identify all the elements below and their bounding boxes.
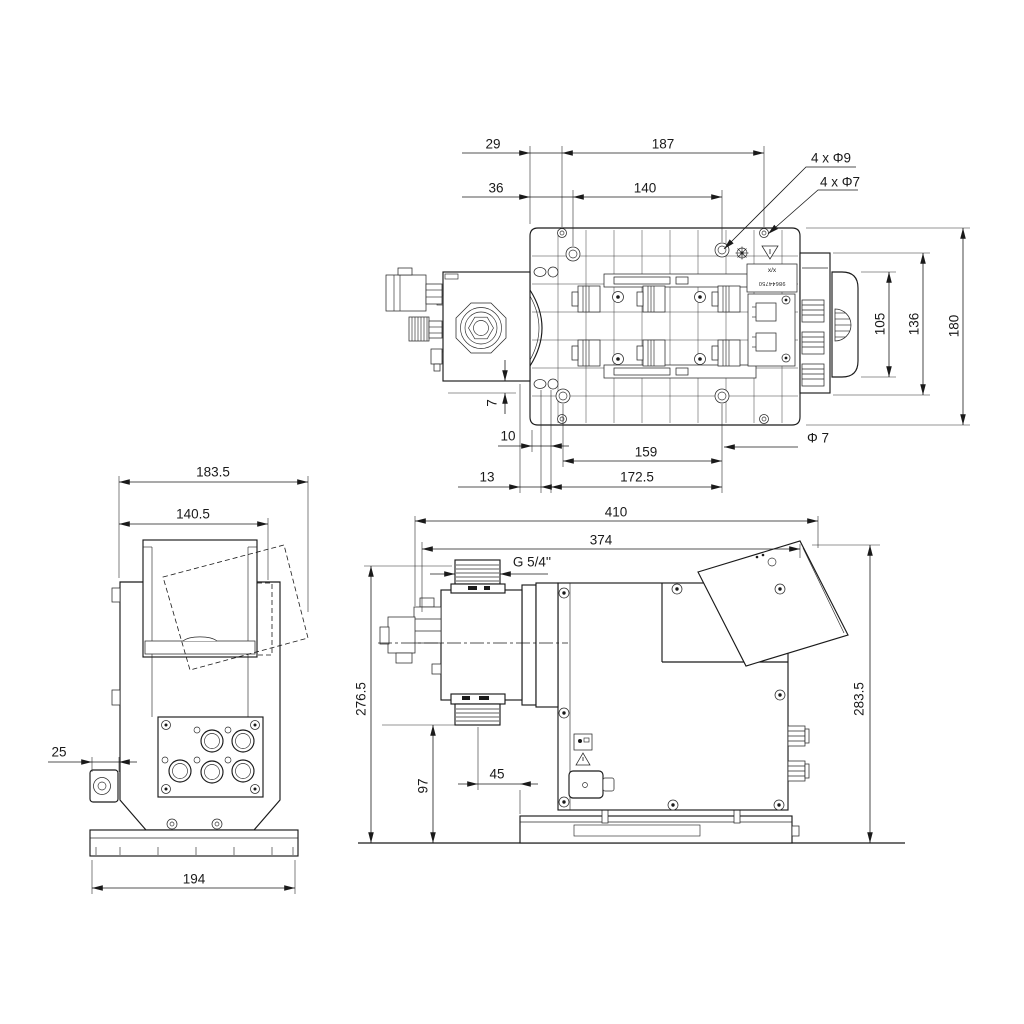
mounting-plate xyxy=(530,228,800,425)
discharge-valve xyxy=(451,560,505,593)
dim-front-194: 194 xyxy=(183,872,206,886)
dim-top-13: 13 xyxy=(479,470,494,484)
pump-head-top xyxy=(437,272,530,381)
dim-top-phi7: Φ 7 xyxy=(807,431,829,445)
dim-top-105: 105 xyxy=(873,313,887,336)
dim-top-187: 187 xyxy=(652,137,675,151)
cable-gland-top xyxy=(386,268,442,311)
dim-top-10: 10 xyxy=(500,429,515,443)
dim-front-183-5: 183.5 xyxy=(196,465,230,479)
drawing-canvas xyxy=(0,0,1024,1024)
dosing-head-side xyxy=(432,583,558,707)
dim-top-holes7: 4 x Φ7 xyxy=(820,175,860,189)
dim-top-172-5: 172.5 xyxy=(620,470,654,484)
dim-side-276-5: 276.5 xyxy=(354,682,368,716)
valve-hex-fitting xyxy=(456,303,506,353)
dim-side-97: 97 xyxy=(416,778,430,793)
side-view xyxy=(358,516,905,843)
mounting-lug xyxy=(90,770,118,802)
dim-side-374: 374 xyxy=(590,533,613,547)
suction-valve xyxy=(451,694,505,725)
dim-top-140: 140 xyxy=(634,181,657,195)
dim-side-410: 410 xyxy=(605,505,628,519)
connector-panel-front xyxy=(158,717,263,797)
dim-top-7: 7 xyxy=(485,399,499,407)
dim-side-thread: G 5/4'' xyxy=(513,555,551,569)
connector-assembly-top xyxy=(800,253,858,393)
dim-side-283-5: 283.5 xyxy=(852,682,866,716)
dim-top-180: 180 xyxy=(947,315,961,338)
base-foot-side xyxy=(520,807,799,843)
plate-label-line1: x/x xyxy=(768,268,776,275)
technical-drawing-page: 29 187 36 140 4 x Φ9 4 x Φ7 105 136 180 … xyxy=(0,0,1024,1024)
dim-front-140-5: 140.5 xyxy=(176,507,210,521)
dim-top-136: 136 xyxy=(907,313,921,336)
control-cube-front xyxy=(143,540,257,657)
dim-top-29: 29 xyxy=(485,137,500,151)
dim-front-25: 25 xyxy=(51,745,66,759)
cable-gland-side xyxy=(380,598,441,663)
adjustment-knob-top xyxy=(409,317,442,371)
side-knobs xyxy=(788,726,809,781)
plate-label-line2: 98644750 xyxy=(759,279,786,285)
front-view xyxy=(48,476,308,894)
dim-side-45: 45 xyxy=(489,767,504,781)
dim-top-holes9: 4 x Φ9 xyxy=(811,151,851,165)
dim-top-36: 36 xyxy=(488,181,503,195)
dim-top-159: 159 xyxy=(635,445,658,459)
